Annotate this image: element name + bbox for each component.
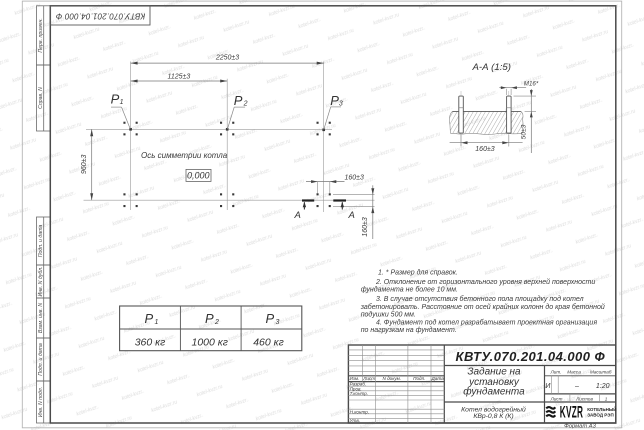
svg-text:КВр-0,8 К (К): КВр-0,8 К (К) [473, 413, 513, 420]
svg-text:1000 кг: 1000 кг [191, 336, 227, 348]
svg-text:960±3: 960±3 [81, 154, 88, 174]
svg-text:2: 2 [214, 319, 219, 326]
svg-text:Т.контр.: Т.контр. [350, 391, 369, 396]
svg-text:Задание на: Задание на [467, 367, 521, 378]
svg-text:1: 1 [120, 99, 124, 106]
svg-text:КВТУ.070.201.04.000 Ф: КВТУ.070.201.04.000 Ф [456, 349, 606, 364]
svg-text:Масса: Масса [567, 370, 581, 375]
svg-text:160±3: 160±3 [345, 175, 365, 182]
svg-text:Лист: Лист [550, 396, 563, 401]
svg-text:Подп. и дата: Подп. и дата [38, 343, 44, 376]
svg-text:1:20: 1:20 [596, 383, 610, 390]
svg-text:1: 1 [155, 319, 159, 326]
svg-text:подушки 500 мм.: подушки 500 мм. [361, 311, 416, 319]
svg-text:0,000: 0,000 [187, 170, 210, 180]
svg-text:КВТУ.070.201.04.000 Ф: КВТУ.070.201.04.000 Ф [55, 12, 145, 21]
svg-text:Лит.: Лит. [550, 370, 562, 375]
svg-text:Подп. и дата: Подп. и дата [38, 225, 44, 258]
svg-text:Масштаб: Масштаб [590, 370, 612, 375]
svg-text:Изм.: Изм. [350, 376, 360, 381]
svg-text:–: – [574, 383, 579, 390]
svg-text:фундамента: фундамента [463, 386, 525, 398]
svg-text:2250±3: 2250±3 [215, 55, 239, 62]
svg-text:1. * Размер для справок.: 1. * Размер для справок. [378, 269, 458, 277]
svg-text:Р: Р [145, 311, 154, 326]
svg-text:Лист: Лист [362, 376, 375, 381]
svg-text:ЗАВОД РЭП: ЗАВОД РЭП [587, 413, 614, 418]
svg-text:по нагрузкам на фундамент.: по нагрузкам на фундамент. [361, 326, 457, 334]
svg-text:160±3: 160±3 [475, 146, 495, 153]
svg-text:Утв.: Утв. [350, 418, 360, 423]
svg-text:4. Фундамент под котел разраба: 4. Фундамент под котел разрабатывает про… [376, 319, 597, 327]
svg-text:Листов: Листов [575, 396, 593, 401]
svg-text:Формат А3: Формат А3 [564, 423, 596, 429]
svg-text:Ось симметрии котла: Ось симметрии котла [141, 151, 228, 160]
svg-text:Н.контр.: Н.контр. [350, 409, 369, 414]
svg-text:Инв. N дубл.: Инв. N дубл. [38, 266, 44, 296]
svg-text:забетонировать. Расстояние от: забетонировать. Расстояние от осей крайн… [360, 303, 605, 311]
svg-text:Р: Р [111, 92, 120, 107]
svg-text:КОТЕЛЬНЫЙ: КОТЕЛЬНЫЙ [587, 405, 616, 412]
svg-text:Р: Р [234, 93, 243, 108]
svg-text:3. В случае отсутствия бетонно: 3. В случае отсутствия бетонного пола пл… [376, 295, 584, 303]
svg-text:KVZR: KVZR [560, 402, 584, 421]
svg-text:Перв. примен.: Перв. примен. [38, 18, 44, 52]
svg-text:160±3: 160±3 [362, 217, 369, 237]
svg-text:50±3: 50±3 [521, 124, 528, 139]
svg-text:3: 3 [339, 101, 343, 108]
svg-text:N докум.: N докум. [383, 376, 402, 381]
svg-text:Дата: Дата [431, 376, 445, 381]
svg-text:360 кг: 360 кг [135, 336, 166, 348]
svg-text:А: А [348, 210, 355, 221]
svg-text:3: 3 [276, 319, 280, 326]
svg-text:2: 2 [243, 101, 248, 108]
svg-text:Взам. инв. N: Взам. инв. N [38, 303, 44, 333]
svg-text:фундамента не более 10 мм.: фундамента не более 10 мм. [361, 286, 458, 294]
svg-text:2. Отклонение от горизонтально: 2. Отклонение от горизонтального уровня … [375, 278, 595, 286]
svg-text:А-А (1:5): А-А (1:5) [472, 62, 511, 73]
svg-text:Справ. N: Справ. N [38, 87, 44, 109]
svg-text:Р: Р [205, 311, 214, 326]
svg-text:1: 1 [605, 396, 608, 401]
svg-text:Р: Р [266, 311, 275, 326]
svg-text:А: А [294, 210, 301, 221]
svg-text:Инв. N подл.: Инв. N подл. [38, 387, 44, 417]
svg-text:М16*: М16* [524, 80, 539, 87]
svg-text:460 кг: 460 кг [253, 336, 284, 348]
svg-text:Подп.: Подп. [413, 376, 425, 381]
svg-text:1125±3: 1125±3 [168, 73, 191, 80]
